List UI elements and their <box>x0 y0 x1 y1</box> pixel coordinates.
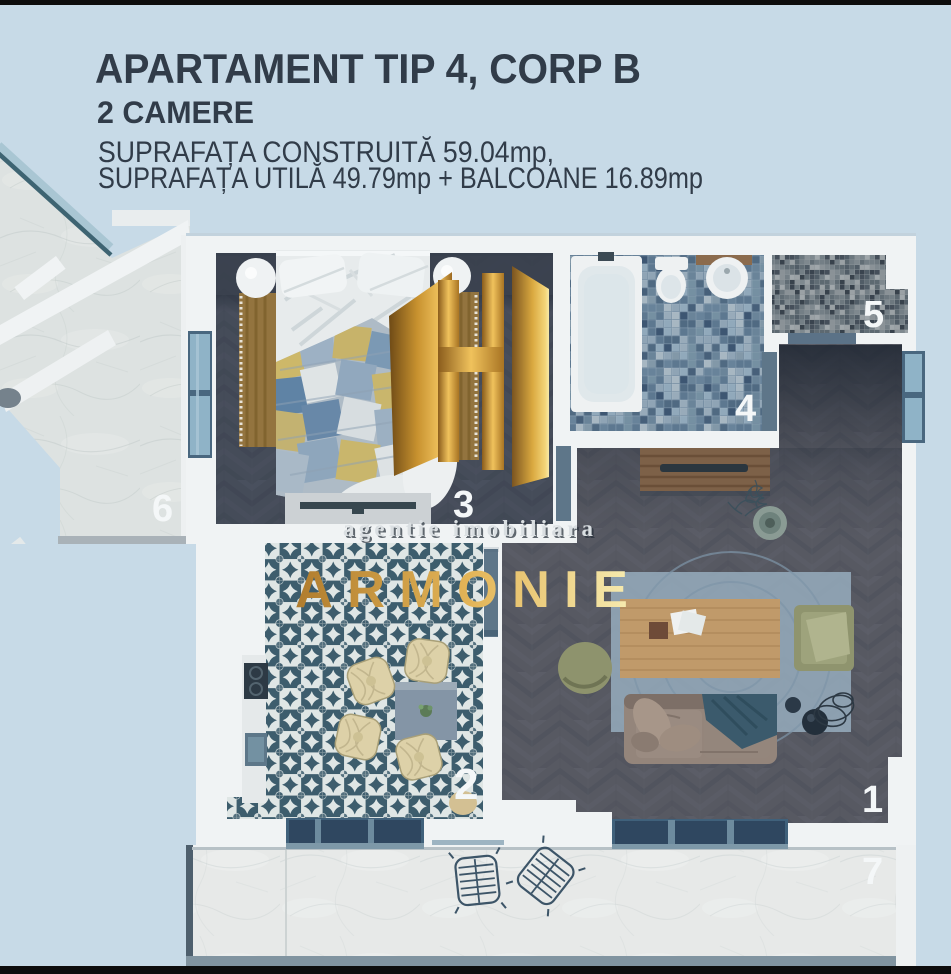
svg-text:APARTAMENT TIP 4, CORP B: APARTAMENT TIP 4, CORP B <box>95 45 641 92</box>
svg-text:SUPRAFAȚA UTILĂ 49.79mp + BALC: SUPRAFAȚA UTILĂ 49.79mp + BALCOANE 16.89… <box>98 162 703 195</box>
svg-text:7: 7 <box>862 851 883 893</box>
svg-text:5: 5 <box>863 294 884 336</box>
svg-text:4: 4 <box>735 388 756 430</box>
svg-text:agentie imobiliara: agentie imobiliara <box>343 516 594 541</box>
svg-text:2: 2 <box>454 760 478 809</box>
svg-text:6: 6 <box>152 488 173 530</box>
svg-text:2 CAMERE: 2 CAMERE <box>97 94 254 130</box>
svg-text:1: 1 <box>862 779 883 821</box>
svg-text:ARMONIE: ARMONIE <box>295 561 642 619</box>
